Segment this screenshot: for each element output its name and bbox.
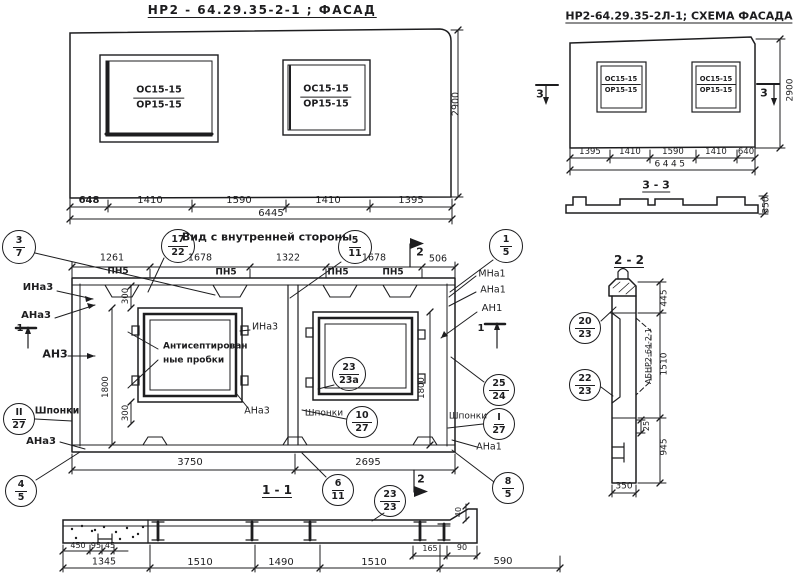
callout-25-24: 25 24 [483, 374, 515, 406]
inner-dim-2695: 2695 [355, 458, 380, 468]
profile-label-pn5-3: ПН5 [327, 269, 348, 278]
callout-bottom: 27 [355, 423, 368, 434]
schema-window-mark-1: ОС15-15 ОР15-15 [602, 75, 641, 95]
facade-dim-1395: 1395 [398, 196, 423, 206]
facade-dim-height: 2900 [451, 92, 461, 116]
schema-window-mark-2: ОС15-15 ОР15-15 [697, 75, 736, 95]
keys-label-left: Шпонки [35, 406, 80, 416]
anchor-label-ana3-left: АНа3 [21, 311, 51, 321]
schema-dim-640: 640 [738, 148, 754, 157]
anchor-label-ana3-bottom: АНа3 [26, 437, 56, 447]
cut-2-marker-bottom: 2 [417, 474, 425, 485]
window-mark-bottom: ОР15-15 [133, 99, 184, 112]
anchor-label-ana3-mid: АНа3 [244, 406, 270, 416]
callout-4-5: 4 5 [5, 475, 37, 507]
window-mark-1: ОС15-15 ОР15-15 [133, 85, 184, 112]
callout-II-27: II 27 [3, 403, 35, 435]
callout-top: 4 [15, 480, 28, 492]
concrete-dots [71, 525, 144, 540]
strip-dim-95: 95 [91, 542, 101, 550]
strip-dim-40: 40 [455, 507, 463, 517]
strip-dim-1490: 1490 [268, 558, 293, 568]
callout-top: 23 [380, 490, 399, 502]
anchor-label-ina3-left: ИНа3 [23, 283, 53, 293]
schema-dim-1410b: 1410 [705, 148, 727, 157]
anchor-label-an3: АН3 [42, 349, 67, 360]
callout-top: II [12, 408, 25, 420]
callout-bottom: 22 [171, 247, 184, 258]
callout-1-5: 1 5 [489, 229, 523, 263]
strip-dim-1345: 1345 [92, 557, 116, 567]
cut-1-marker-right: 1 [478, 324, 485, 334]
strip-dim-450: 450 [70, 542, 85, 550]
schema-dim-total: 6445 [655, 161, 688, 170]
dim-25: 25 [643, 421, 651, 431]
dim-1800-right: 1800 [418, 377, 427, 399]
schema-dim-height: 2900 [787, 79, 796, 102]
anchor-label-ana1-bottom: АНа1 [476, 442, 502, 452]
inner-dim-1322: 1322 [276, 253, 300, 263]
dim-945: 945 [661, 438, 670, 455]
facade-dim-1590: 1590 [226, 196, 251, 206]
callout-3-7: 3 7 [2, 230, 36, 264]
section-3-3-thickness: 350 [763, 196, 772, 213]
callout-top: 25 [489, 379, 508, 391]
window-mark-top: ОС15-15 [697, 75, 736, 85]
plugs-note-line1: Антисептирован [163, 343, 248, 352]
strip-dim-90: 90 [457, 544, 467, 552]
callout-top: 5 [349, 236, 362, 248]
keys-label-right: Шпонки [449, 413, 487, 422]
panel-stamp: АБНР2-64-2-1 [645, 328, 653, 384]
window-mark-bottom: ОР15-15 [602, 86, 641, 95]
section-2-2-title: 2 - 2 [614, 254, 644, 268]
window-mark-bottom: ОР15-15 [697, 86, 736, 95]
inner-dim-1261: 1261 [100, 253, 124, 263]
callout-20-23: 20 23 [569, 312, 601, 344]
callout-bottom: 23 [578, 386, 591, 397]
cut-1-marker-left: 1 [17, 324, 24, 334]
strip-dim-1510b: 1510 [361, 558, 386, 568]
facade-dim-total: 6445 [258, 209, 283, 219]
callout-8-5: 8 5 [492, 472, 524, 504]
facade-dim-1410b: 1410 [315, 196, 340, 206]
callout-top: 6 [332, 479, 345, 491]
callout-top: 22 [575, 374, 594, 386]
callout-top: 10 [352, 411, 371, 423]
facade-title: НР2 - 64.29.35-2-1 ; ФАСАД [148, 4, 377, 18]
strip-dim-165: 165 [422, 545, 437, 553]
strip-1-1-linework [60, 503, 563, 572]
section-2-2-linework [609, 269, 666, 498]
callout-top: I [494, 413, 504, 425]
callout-22-23: 22 23 [569, 369, 601, 401]
callout-bottom: 24 [492, 391, 505, 402]
dim-300-top: 300 [122, 288, 131, 304]
strip-dim-590: 590 [493, 557, 512, 567]
cut-2-marker-top: 2 [416, 247, 424, 258]
anchor-label-ana1-top: АНа1 [480, 285, 506, 295]
section-1-1-title: 1 - 1 [262, 484, 292, 498]
dim-1510-vert: 1510 [661, 353, 670, 376]
window-mark-top: ОС15-15 [602, 75, 641, 85]
inner-dim-3750: 3750 [177, 458, 202, 468]
anchor-label-mna1: МНа1 [478, 269, 505, 279]
profile-label-pn5-2: ПН5 [215, 269, 236, 278]
schema-dim-1410a: 1410 [619, 148, 641, 157]
callout-23-23: 23 23 [374, 485, 406, 517]
callout-bottom: 23 [578, 329, 591, 340]
callout-23-23a: 23 23а [332, 357, 366, 391]
callout-top: 8 [502, 477, 515, 489]
anchor-label-ina3-mid: ИНа3 [252, 322, 278, 332]
plugs-note-line2: ные пробки [163, 357, 224, 366]
callout-bottom: 7 [16, 248, 23, 259]
window-mark-top: ОС15-15 [133, 85, 184, 99]
section-3-3-title: 3 - 3 [642, 180, 670, 193]
facade-dim-648: 648 [79, 196, 100, 206]
dim-300-bottom: 300 [122, 405, 131, 421]
callout-bottom: 5 [503, 247, 510, 258]
dim-445: 445 [661, 289, 670, 306]
blueprint-sheet: НР2 - 64.29.35-2-1 ; ФАСАД ОС15-15 ОР15-… [0, 0, 809, 577]
facade-dim-1410a: 1410 [137, 196, 162, 206]
window-mark-bottom: ОР15-15 [300, 98, 351, 111]
cut-3-marker-left: 3 [536, 89, 544, 100]
inner-dim-506: 506 [429, 254, 447, 264]
callout-bottom: 27 [12, 420, 25, 431]
callout-5-11: 5 11 [338, 230, 372, 264]
callout-10-27: 10 27 [346, 406, 378, 438]
callout-bottom: 27 [492, 425, 505, 436]
profile-label-pn5-4: ПН5 [382, 269, 403, 278]
callout-bottom: 5 [18, 492, 25, 503]
profile-label-pn5-1: ПН5 [107, 268, 128, 277]
callout-top: 1 [500, 235, 513, 247]
anchor-label-an1: АН1 [482, 304, 503, 314]
cut-3-marker-right: 3 [760, 88, 768, 99]
window-mark-top: ОС15-15 [300, 84, 351, 98]
callout-bottom: 23а [339, 375, 359, 386]
strip-dim-1510a: 1510 [187, 558, 212, 568]
strip-dim-45: 45 [105, 542, 115, 550]
schema-dim-1395: 1395 [579, 148, 601, 157]
window-mark-2: ОС15-15 ОР15-15 [300, 84, 351, 111]
schema-title: НР2-64.29.35-2Л-1; СХЕМА ФАСАДА [565, 11, 792, 24]
inner-view-linework [16, 238, 505, 497]
callout-top: 20 [575, 317, 594, 329]
callout-bottom: 11 [331, 491, 344, 502]
callout-top: 3 [13, 236, 26, 248]
dim-350-section22: 350 [615, 483, 632, 492]
dim-1800-left: 1800 [102, 376, 111, 398]
schema-dim-1590: 1590 [662, 148, 684, 157]
keys-label-mid: Шпонки [305, 410, 343, 419]
inner-view-title: Вид с внутренней стороны [182, 232, 352, 243]
callout-bottom: 5 [505, 489, 512, 500]
callout-I-27: I 27 [483, 408, 515, 440]
callout-bottom: 11 [348, 248, 361, 259]
callout-top: 23 [339, 363, 358, 375]
callout-bottom: 23 [383, 502, 396, 513]
callout-17-22: 17 22 [161, 229, 195, 263]
callout-6-11: 6 11 [322, 474, 354, 506]
callout-top: 17 [168, 235, 187, 247]
